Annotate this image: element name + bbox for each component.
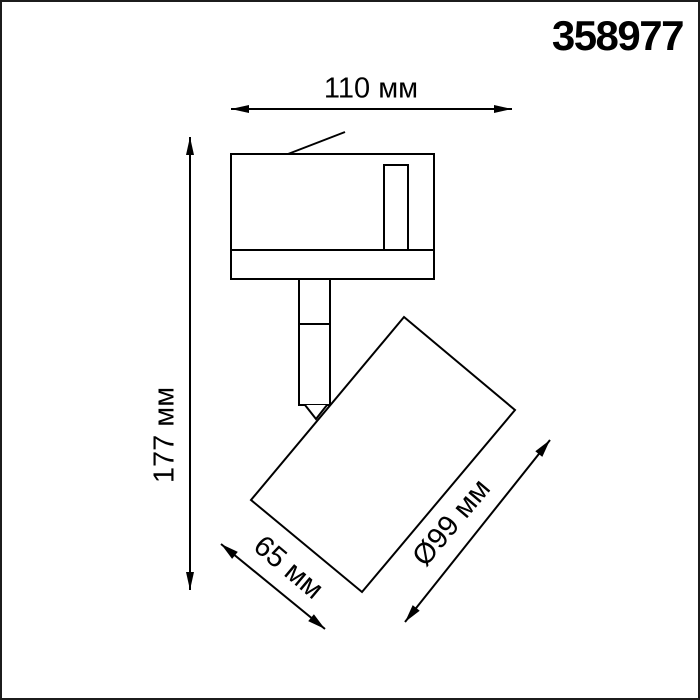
dimension-drawing-canvas	[2, 2, 700, 700]
height-dimension-arrow	[186, 137, 194, 590]
width-dimension-arrow	[231, 105, 512, 113]
arrowhead-down-icon	[186, 572, 194, 590]
arrowhead-left-icon	[231, 105, 249, 113]
product-dimension-sheet: 358977	[0, 0, 700, 700]
arrowhead-right-icon	[494, 105, 512, 113]
release-lever-line	[288, 132, 345, 154]
arrowhead-up-icon	[186, 137, 194, 155]
swivel-stem	[299, 279, 330, 405]
adapter-latch-slot	[384, 165, 408, 250]
width-dimension-label: 110 мм	[324, 75, 418, 104]
height-dimension-label: 177 мм	[151, 387, 180, 483]
